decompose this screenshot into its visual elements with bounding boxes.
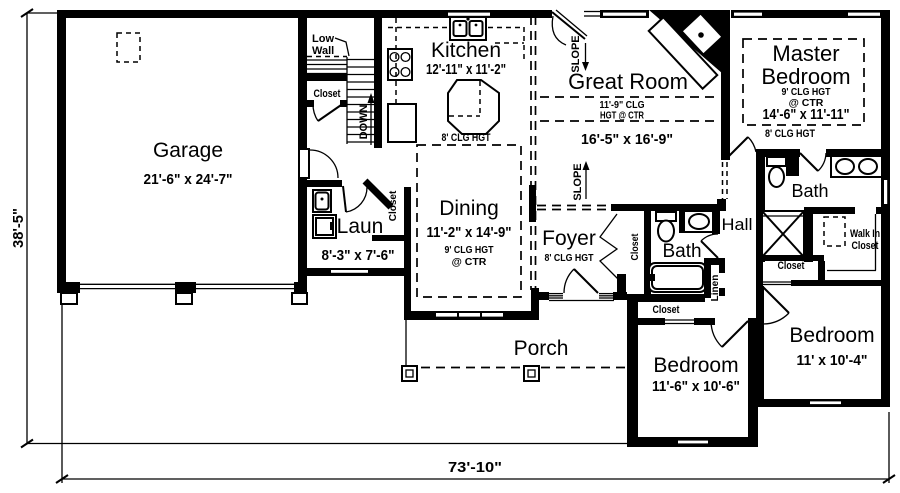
svg-text:11'-6" x 10'-6": 11'-6" x 10'-6" bbox=[652, 379, 740, 395]
svg-text:Low: Low bbox=[312, 33, 334, 45]
svg-text:16'-5" x 16'-9": 16'-5" x 16'-9" bbox=[581, 131, 673, 148]
svg-text:Linen: Linen bbox=[710, 275, 721, 302]
svg-text:Master: Master bbox=[772, 41, 839, 66]
svg-text:Bath: Bath bbox=[662, 241, 701, 262]
svg-text:Laun: Laun bbox=[337, 215, 384, 238]
svg-text:9' CLG HGT: 9' CLG HGT bbox=[445, 244, 494, 256]
svg-text:11' x 10'-4": 11' x 10'-4" bbox=[797, 353, 868, 369]
svg-text:Closet: Closet bbox=[629, 233, 641, 260]
svg-text:11'-2" x 14'-9": 11'-2" x 14'-9" bbox=[427, 225, 512, 241]
svg-text:11'-9" CLG: 11'-9" CLG bbox=[600, 100, 645, 111]
svg-text:HGT @ CTR: HGT @ CTR bbox=[600, 111, 645, 122]
svg-text:SLOPE: SLOPE bbox=[572, 163, 584, 200]
svg-text:Kitchen: Kitchen bbox=[431, 39, 501, 62]
svg-text:8' CLG HGT: 8' CLG HGT bbox=[545, 252, 594, 264]
svg-text:73'-10": 73'-10" bbox=[448, 460, 502, 476]
svg-text:Bedroom: Bedroom bbox=[789, 324, 874, 347]
svg-text:Closet: Closet bbox=[852, 240, 879, 252]
svg-text:Porch: Porch bbox=[514, 337, 569, 360]
svg-text:Wall: Wall bbox=[312, 45, 334, 57]
svg-text:SLOPE: SLOPE bbox=[570, 35, 582, 72]
svg-text:21'-6" x 24'-7": 21'-6" x 24'-7" bbox=[144, 172, 233, 188]
svg-text:Great Room: Great Room bbox=[568, 69, 688, 94]
svg-text:Closet: Closet bbox=[388, 190, 399, 221]
svg-text:Closet: Closet bbox=[778, 260, 805, 272]
svg-text:Hall: Hall bbox=[722, 215, 753, 234]
svg-text:Dining: Dining bbox=[439, 197, 499, 220]
svg-text:@ CTR: @ CTR bbox=[452, 256, 487, 268]
svg-text:8' CLG HGT: 8' CLG HGT bbox=[765, 128, 815, 140]
svg-text:8'-3" x 7'-6": 8'-3" x 7'-6" bbox=[322, 248, 395, 264]
svg-text:Foyer: Foyer bbox=[542, 227, 596, 250]
svg-text:Closet: Closet bbox=[653, 304, 680, 316]
svg-text:38'-5": 38'-5" bbox=[11, 208, 27, 248]
svg-text:Bedroom: Bedroom bbox=[653, 354, 738, 377]
svg-text:Closet: Closet bbox=[314, 88, 341, 100]
svg-text:14'-6" x 11'-11": 14'-6" x 11'-11" bbox=[763, 106, 850, 123]
svg-text:Garage: Garage bbox=[153, 139, 223, 162]
svg-text:Bath: Bath bbox=[791, 181, 828, 201]
svg-text:12'-11" x 11'-2": 12'-11" x 11'-2" bbox=[426, 62, 506, 78]
svg-text:DOWN: DOWN bbox=[358, 105, 370, 140]
